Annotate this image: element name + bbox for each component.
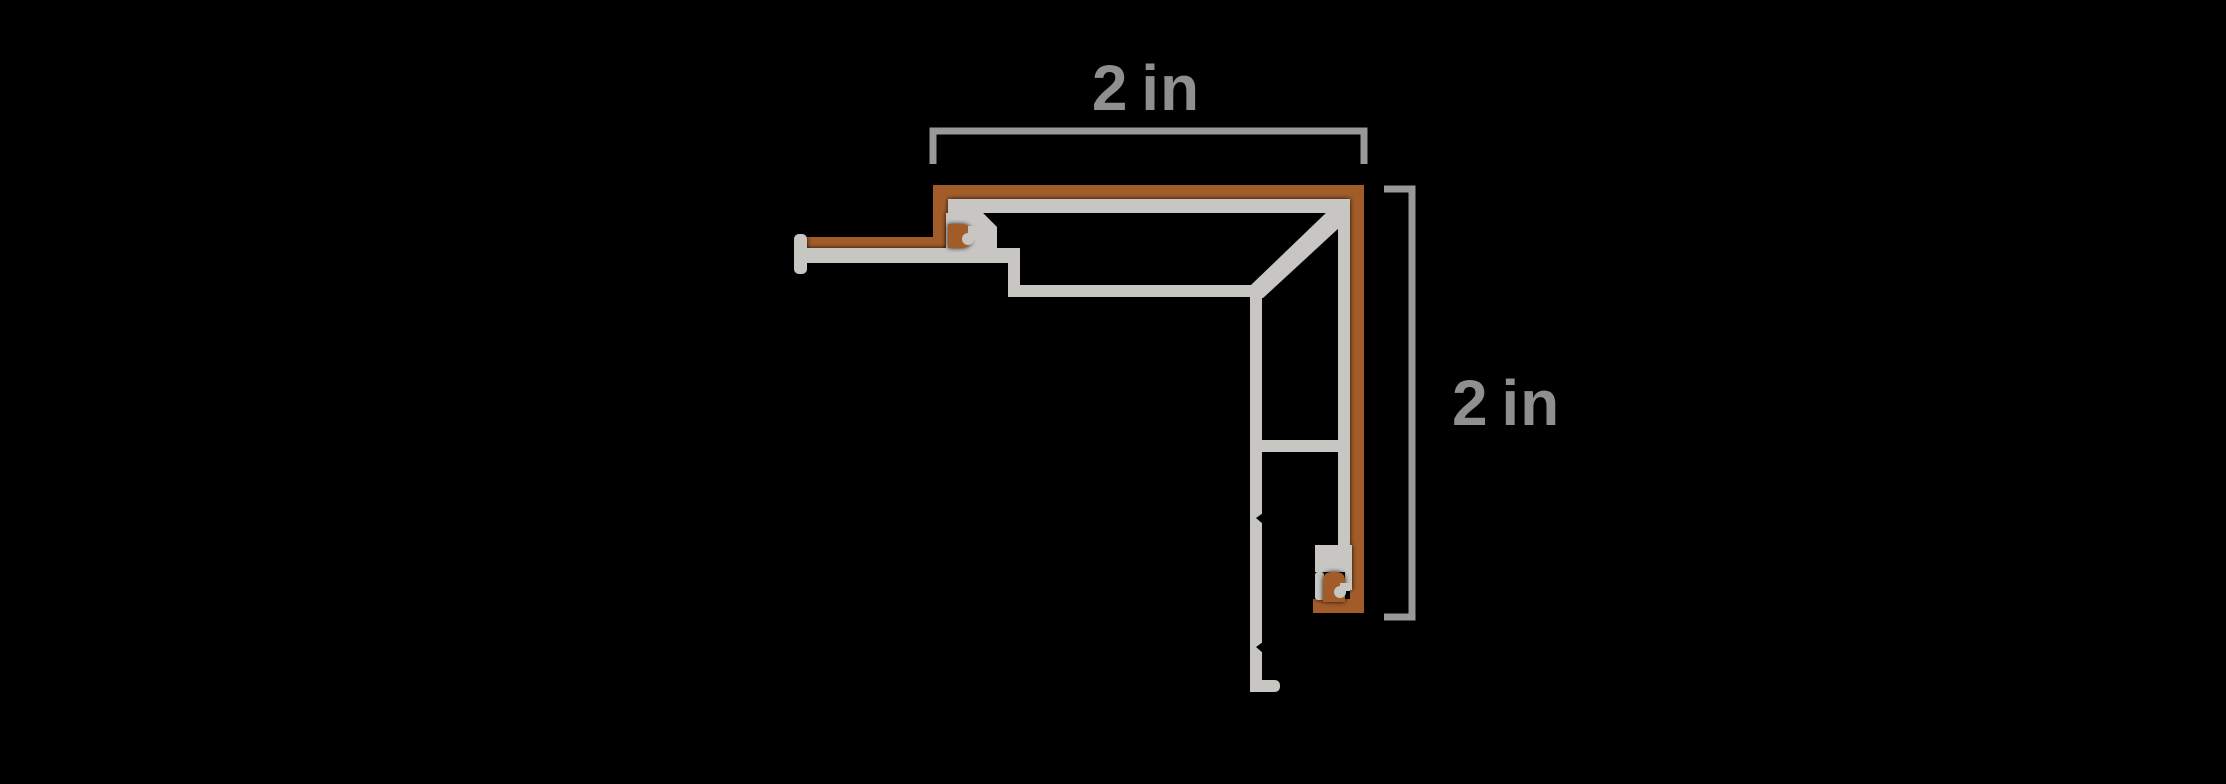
aluminum-profile [794,199,1352,692]
lower-hook-tip [1334,586,1346,598]
height-dimension-label: 2 in [1452,367,1560,439]
profile-vertical-member [1250,285,1262,692]
profile-bottom-foot [1250,680,1280,692]
corner-trim-profile-diagram: 2 in 2 in [0,0,2226,784]
laminate-top-band [933,185,1364,201]
width-dimension-label: 2 in [1092,52,1200,124]
height-dimension-bracket [1384,189,1412,617]
profile-right-wall [1338,199,1350,547]
profile-arm-wall [804,248,1020,263]
profile-top-wall [948,199,1350,213]
aluminum-hook-tips [962,226,1350,598]
upper-hook-tip [962,233,974,245]
profile-crossbar [1262,440,1338,452]
profile-diagonal-brace [1250,212,1341,298]
profile-lower-hook-finger-left [1315,572,1324,600]
laminate-hook-blobs [948,224,1345,602]
profile-web [1008,285,1262,297]
diagram-canvas: 2 in 2 in [0,0,2226,784]
width-dimension-bracket [933,131,1364,164]
laminate-right-band [1350,185,1364,613]
profile-lower-hook-block [1315,545,1352,572]
